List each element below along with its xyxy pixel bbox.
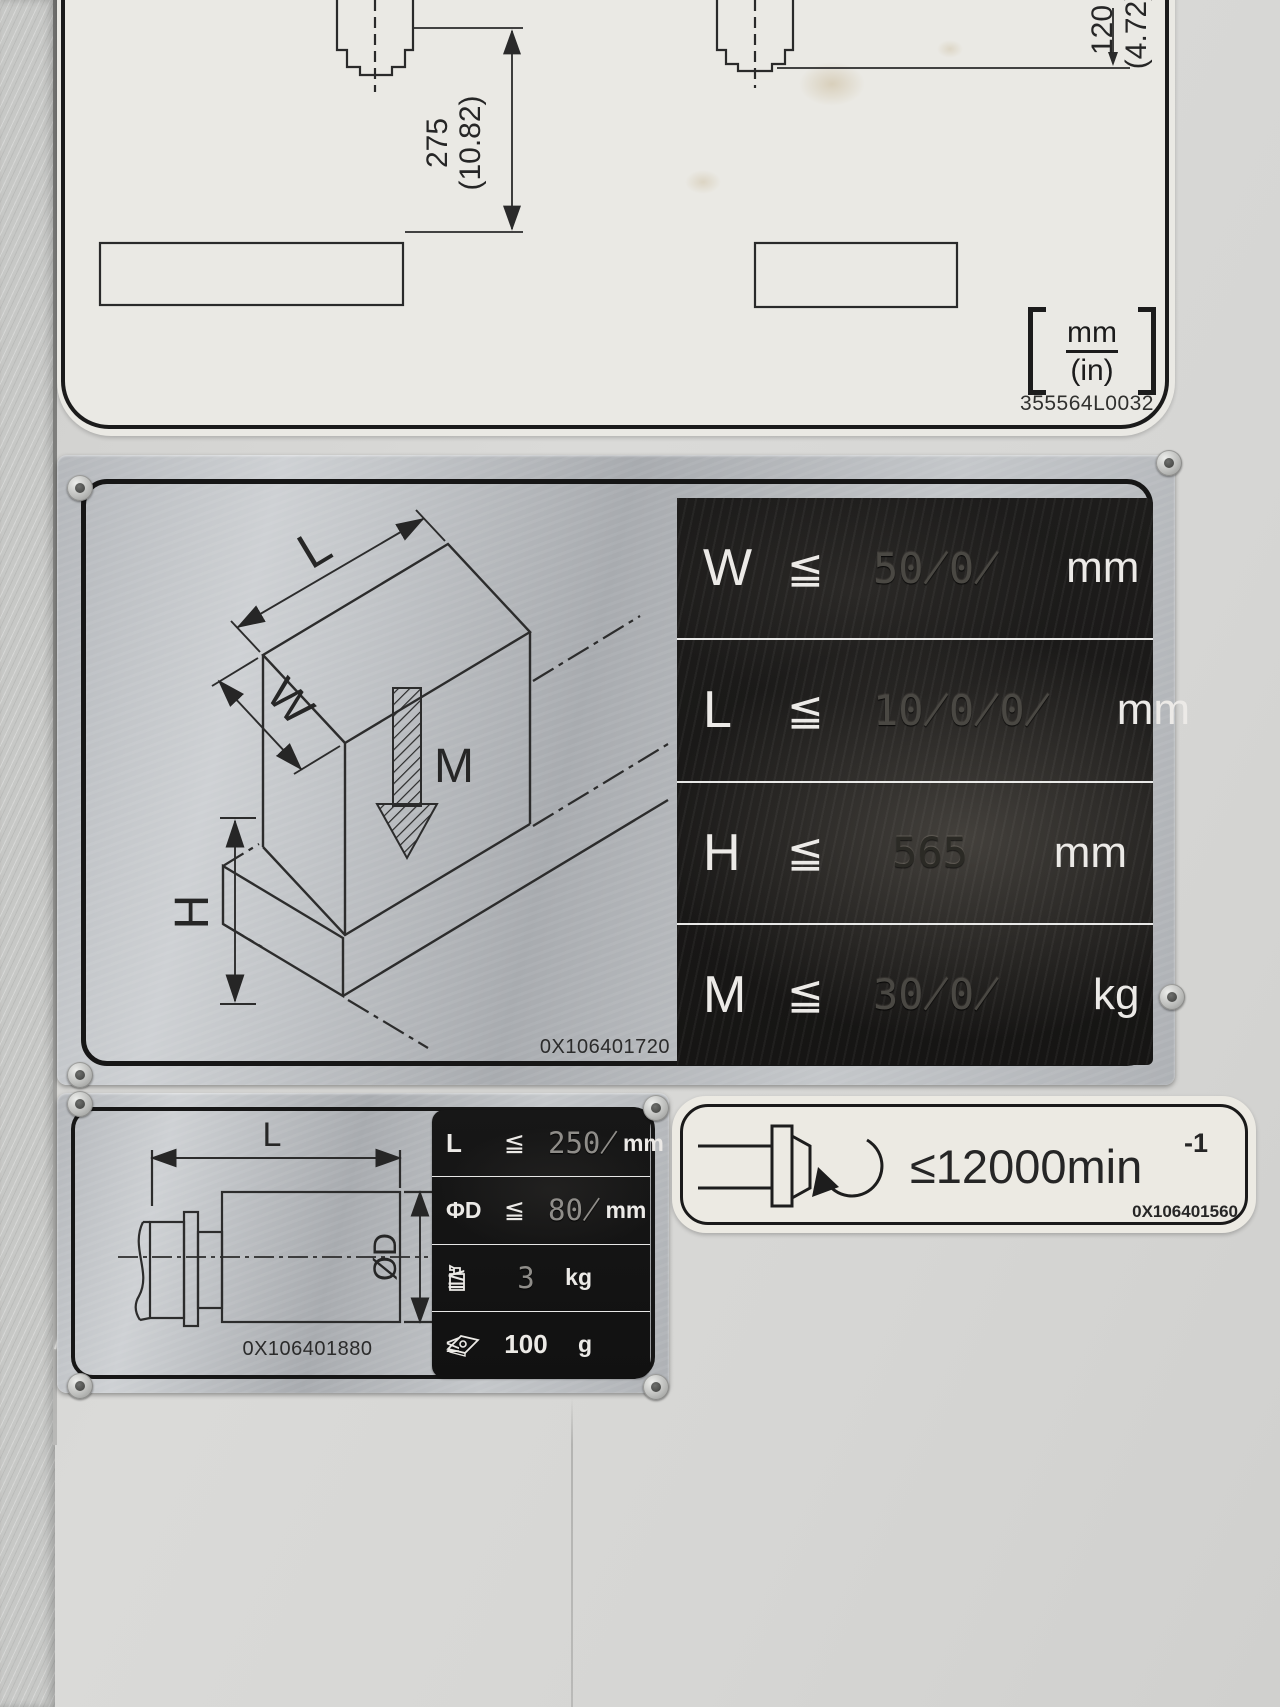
slab-end-face [223, 866, 343, 996]
dim-line-L [238, 519, 423, 627]
workpiece-plate-part-number: 0X106401720 [450, 1036, 670, 1059]
row-unit: g [548, 1331, 592, 1358]
table-row-tool-D: ΦD ≦ 80̸ mm [432, 1177, 650, 1244]
engraved-value: 3 [504, 1261, 548, 1295]
weight-icon [446, 1264, 468, 1292]
table-row-tool-insert: ≤ 100 g [432, 1312, 650, 1378]
less-equal-sign: ≦ [504, 1128, 548, 1158]
row-unit: mm [987, 828, 1127, 878]
left-bracket [1028, 307, 1046, 395]
load-arrow-shaft [393, 688, 421, 806]
tool-flange [184, 1212, 198, 1326]
row-symbol: L [446, 1128, 504, 1159]
machine-panel-photo: 275 (10.82) 120 (4.72) mm (in) 355564L00… [0, 0, 1280, 1707]
row-unit: kg [999, 970, 1139, 1020]
row-unit: mm [618, 1130, 664, 1157]
table-row-tool-L: L ≦ 250̸ mm [432, 1110, 650, 1177]
unit-notation: mm (in) [1028, 308, 1156, 394]
unit-mm: mm [1066, 317, 1118, 348]
top-label-part-number: 355564L0032 [940, 392, 1154, 416]
table-row-H: H ≦ 565 mm [677, 783, 1153, 925]
table-row-L: L ≦ 10̸0̸0̸ mm [677, 640, 1153, 782]
row-symbol: ΦD [446, 1197, 504, 1224]
panel-seam [571, 1398, 573, 1707]
dim-letter-M: M [434, 740, 474, 793]
right-bracket [1138, 307, 1156, 395]
row-unit: mm [600, 1197, 646, 1224]
dim-275-in: (10.82) [454, 95, 487, 190]
engraved-value: 10̸0̸0̸ [873, 686, 1050, 735]
engraved-value: 565 [873, 828, 987, 877]
fraction-line [1066, 350, 1118, 353]
screw [67, 1091, 93, 1117]
engraved-value: 50̸0̸ [873, 544, 999, 593]
row-unit: mm [1050, 685, 1190, 735]
spindle-label-part-number: 0X106401560 [1132, 1202, 1238, 1221]
tool-plate-part-number: 0X106401880 [195, 1338, 420, 1361]
row-unit: kg [548, 1264, 592, 1291]
workpiece-limit-table: W ≦ 50̸0̸ mm L ≦ 10̸0̸0̸ mm H ≦ 565 mm M… [677, 498, 1153, 1065]
spindle-rotation-icon [698, 1126, 882, 1206]
engraved-value: 30̸0̸ [873, 970, 999, 1019]
unit-in: (in) [1066, 355, 1118, 386]
less-equal-sign: ≦ [787, 685, 873, 736]
printed-value: 100 [504, 1329, 548, 1360]
table-row-W: W ≦ 50̸0̸ mm [677, 498, 1153, 640]
dim-letter-tool-D: ØD [367, 1233, 403, 1281]
screw [1156, 450, 1182, 476]
engraved-value: 250̸ [548, 1126, 618, 1160]
load-arrow-head [377, 804, 437, 858]
row-symbol: L [703, 680, 787, 740]
dim-120-mm: 120 [1086, 5, 1119, 55]
top-label-drawing: 275 (10.82) 120 (4.72) [57, 0, 1173, 432]
dim-275-mm: 275 [421, 118, 454, 168]
screw [67, 1062, 93, 1088]
break-line [136, 1222, 144, 1320]
dim-120-in: (4.72) [1120, 0, 1153, 69]
screw [643, 1095, 669, 1121]
workpiece-iso-drawing: L W H M [57, 455, 697, 1085]
screw [1159, 984, 1185, 1010]
spindle-speed-text: ≤12000min [910, 1140, 1142, 1193]
nameplate-box-right [755, 243, 957, 307]
panel-left-edge [0, 0, 55, 1707]
tool-adapter [198, 1232, 222, 1308]
dim-letter-L: L [288, 517, 341, 579]
row-symbol: H [703, 823, 787, 883]
tool-limit-table: L ≦ 250̸ mm ΦD ≦ 80̸ mm ≦ 3 kg ≤ 1 [432, 1110, 650, 1378]
insert-icon [446, 1333, 480, 1357]
less-equal-sign: ≦ [787, 827, 873, 878]
dim-letter-W: W [257, 667, 325, 735]
dim-letter-H: H [166, 895, 219, 930]
row-symbol: M [703, 965, 787, 1025]
dim-letter-tool-L: L [263, 1116, 282, 1154]
spindle-plate [150, 1222, 184, 1318]
spindle-speed-content: ≤12000min -1 0X106401560 [672, 1096, 1256, 1233]
screw [67, 1373, 93, 1399]
less-equal-sign: ≦ [787, 969, 873, 1020]
screw [643, 1374, 669, 1400]
engraved-value: 80̸ [548, 1193, 600, 1227]
less-equal-sign: ≦ [787, 543, 873, 594]
table-row-tool-weight: ≦ 3 kg [432, 1245, 650, 1312]
less-equal-sign: ≦ [504, 1195, 548, 1225]
spindle-speed-exponent: -1 [1184, 1128, 1208, 1158]
screw [67, 475, 93, 501]
row-unit: mm [999, 543, 1139, 593]
row-symbol: W [703, 538, 787, 598]
nameplate-box-left [100, 243, 403, 305]
table-row-M: M ≦ 30̸0̸ kg [677, 925, 1153, 1065]
